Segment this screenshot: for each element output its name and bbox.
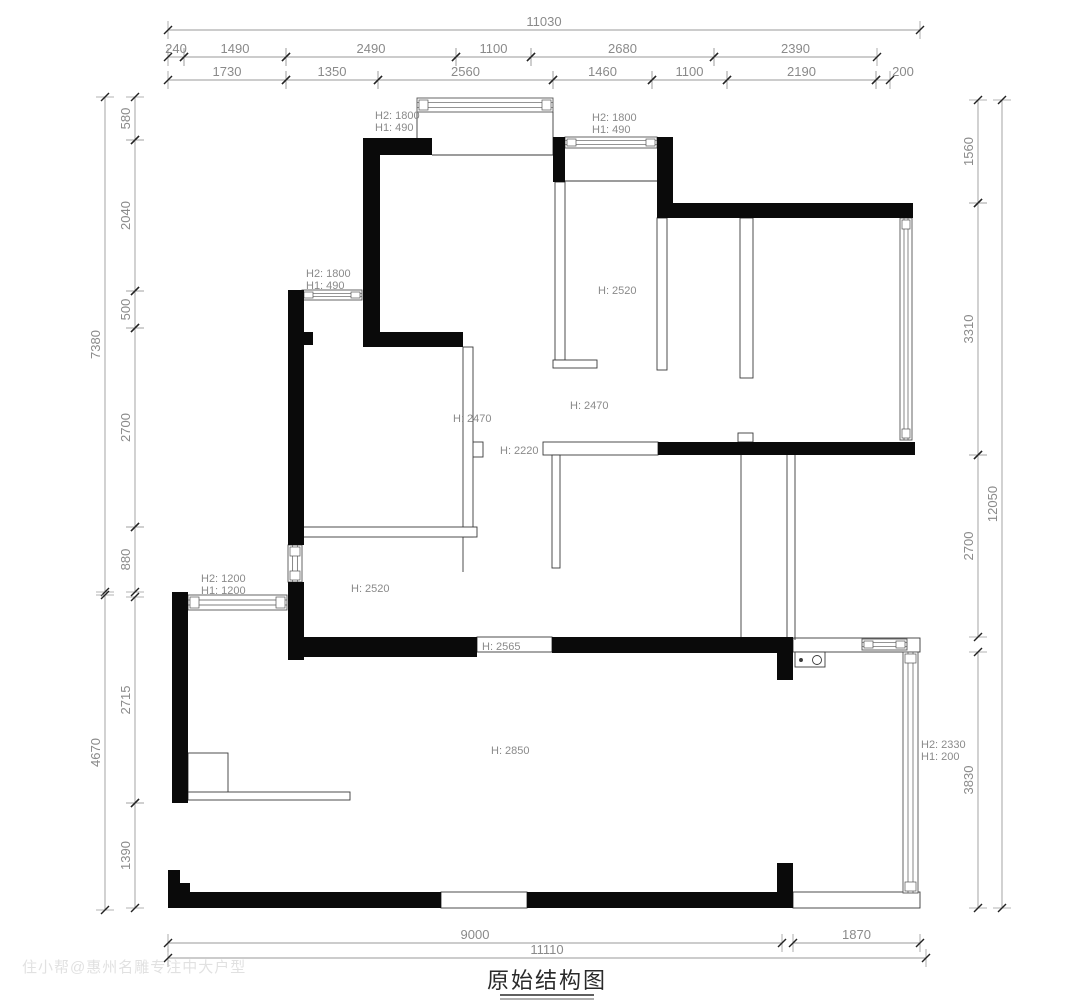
dimension-label: 1390 xyxy=(118,841,133,870)
wall-segment xyxy=(172,592,188,803)
dimension-label: 9000 xyxy=(461,927,490,942)
height-label: H: 2850 xyxy=(491,745,530,757)
dimension-label: 1460 xyxy=(588,64,617,79)
wall-outline xyxy=(543,442,658,455)
wall-segment xyxy=(298,332,313,345)
dimension-label: 2390 xyxy=(781,41,810,56)
height-label: H: 2220 xyxy=(500,445,539,457)
window-end-cap xyxy=(542,100,551,110)
wall-segment xyxy=(658,442,915,455)
wall-segment xyxy=(777,653,793,680)
height-label: H2: 1800 xyxy=(306,268,351,280)
wall-outline xyxy=(552,455,560,568)
dimension-label: 500 xyxy=(118,299,133,321)
wall-outline xyxy=(657,218,667,370)
wall-outline xyxy=(553,360,597,368)
wall-segment xyxy=(553,137,565,182)
dimension-label: 1730 xyxy=(213,64,242,79)
dimension-label: 2490 xyxy=(357,41,386,56)
dimension-label: 2040 xyxy=(118,201,133,230)
wall-segment xyxy=(657,203,913,218)
window-end-cap xyxy=(902,220,910,229)
wall-outline xyxy=(555,182,565,360)
dimension-chains: 1103024014902490110026802390173013502560… xyxy=(88,14,1011,967)
wall-outline xyxy=(188,753,228,793)
dimension-label: 1100 xyxy=(676,64,704,79)
height-label: H1: 200 xyxy=(921,751,960,763)
window-end-cap xyxy=(902,429,910,438)
wall-segment xyxy=(180,883,190,892)
height-label: H: 2470 xyxy=(453,413,492,425)
height-label: H: 2520 xyxy=(351,583,390,595)
dimension-label: 880 xyxy=(118,549,133,571)
dimension-label: 1490 xyxy=(221,41,250,56)
window-symbol xyxy=(417,98,553,112)
plan-geometry: H2: 1800H1: 490H2: 1800H1: 490H2: 1800H1… xyxy=(168,98,966,908)
wall-outline xyxy=(738,433,753,442)
height-label: H1: 490 xyxy=(592,124,631,136)
window-end-cap xyxy=(567,139,576,146)
door-fixture xyxy=(813,656,822,665)
wall-outline xyxy=(793,892,920,908)
window-end-cap xyxy=(190,597,199,608)
wall-segment xyxy=(527,892,793,908)
watermark: 住小帮@惠州名雕专注中大户型 xyxy=(22,959,246,976)
dimension-label: 3830 xyxy=(961,766,976,795)
wall-outline xyxy=(441,892,527,908)
dimension-label: 4670 xyxy=(88,738,103,767)
window-end-cap xyxy=(304,292,313,298)
dimension-label: 7380 xyxy=(88,330,103,359)
dimension-label: 12050 xyxy=(985,486,1000,522)
height-label: H1: 490 xyxy=(375,122,414,134)
window-end-cap xyxy=(646,139,655,146)
dimension-label: 11110 xyxy=(530,942,563,957)
wall-segment xyxy=(288,290,304,545)
wall-outline xyxy=(188,792,350,800)
dimension-label: 580 xyxy=(118,108,133,130)
height-label: H2: 1800 xyxy=(375,110,420,122)
dimension-label: 3310 xyxy=(961,315,976,344)
dimension-label: 1870 xyxy=(842,927,871,942)
dimension-label: 2700 xyxy=(118,413,133,442)
height-label: H: 2470 xyxy=(570,400,609,412)
wall-segment xyxy=(777,863,793,908)
height-label: H2: 2330 xyxy=(921,739,966,751)
window-symbol xyxy=(565,137,657,148)
floor-plan-page: H2: 1800H1: 490H2: 1800H1: 490H2: 1800H1… xyxy=(0,0,1080,1005)
dimension-label: 2700 xyxy=(961,532,976,561)
wall-outline xyxy=(463,347,473,537)
title-underline xyxy=(500,995,594,999)
window-end-cap xyxy=(290,547,300,556)
window-symbol xyxy=(903,652,918,893)
wall-segment xyxy=(363,138,380,347)
dimension-label: 1560 xyxy=(961,137,976,166)
wall-segment xyxy=(552,637,793,653)
dimension-label: 1100 xyxy=(480,41,508,56)
wall-segment xyxy=(290,637,477,657)
height-label: H: 2565 xyxy=(482,641,521,653)
window-end-cap xyxy=(351,292,360,298)
wall-segment xyxy=(380,332,463,347)
window-end-cap xyxy=(419,100,428,110)
floor-plan-canvas: H2: 1800H1: 490H2: 1800H1: 490H2: 1800H1… xyxy=(0,0,1080,1005)
door-fixture xyxy=(800,659,803,662)
height-label: H2: 1800 xyxy=(592,112,637,124)
window-end-cap xyxy=(905,882,916,891)
dimension-label: 2190 xyxy=(787,64,816,79)
dimension-label: 200 xyxy=(892,64,914,79)
window-end-cap xyxy=(290,571,300,580)
wall-outline xyxy=(303,527,477,537)
dimension-label: 2680 xyxy=(608,41,637,56)
dimension-label: 11030 xyxy=(526,14,561,29)
window-end-cap xyxy=(864,641,873,648)
dimension-label: 240 xyxy=(165,41,187,56)
dimension-label: 2715 xyxy=(118,686,133,715)
wall-segment xyxy=(168,892,441,908)
dimension-label: 2560 xyxy=(451,64,480,79)
window-end-cap xyxy=(896,641,905,648)
window-end-cap xyxy=(905,654,916,663)
height-label: H1: 490 xyxy=(306,280,345,292)
dimension-label: 1350 xyxy=(318,64,347,79)
height-label: H1: 1200 xyxy=(201,585,246,597)
drawing-title: 原始结构图 xyxy=(487,968,607,993)
window-symbol xyxy=(900,218,912,440)
height-label: H2: 1200 xyxy=(201,573,246,585)
wall-segment xyxy=(168,870,180,892)
height-label: H: 2520 xyxy=(598,285,637,297)
window-symbol xyxy=(188,595,287,610)
wall-outline xyxy=(740,218,753,378)
window-end-cap xyxy=(276,597,285,608)
